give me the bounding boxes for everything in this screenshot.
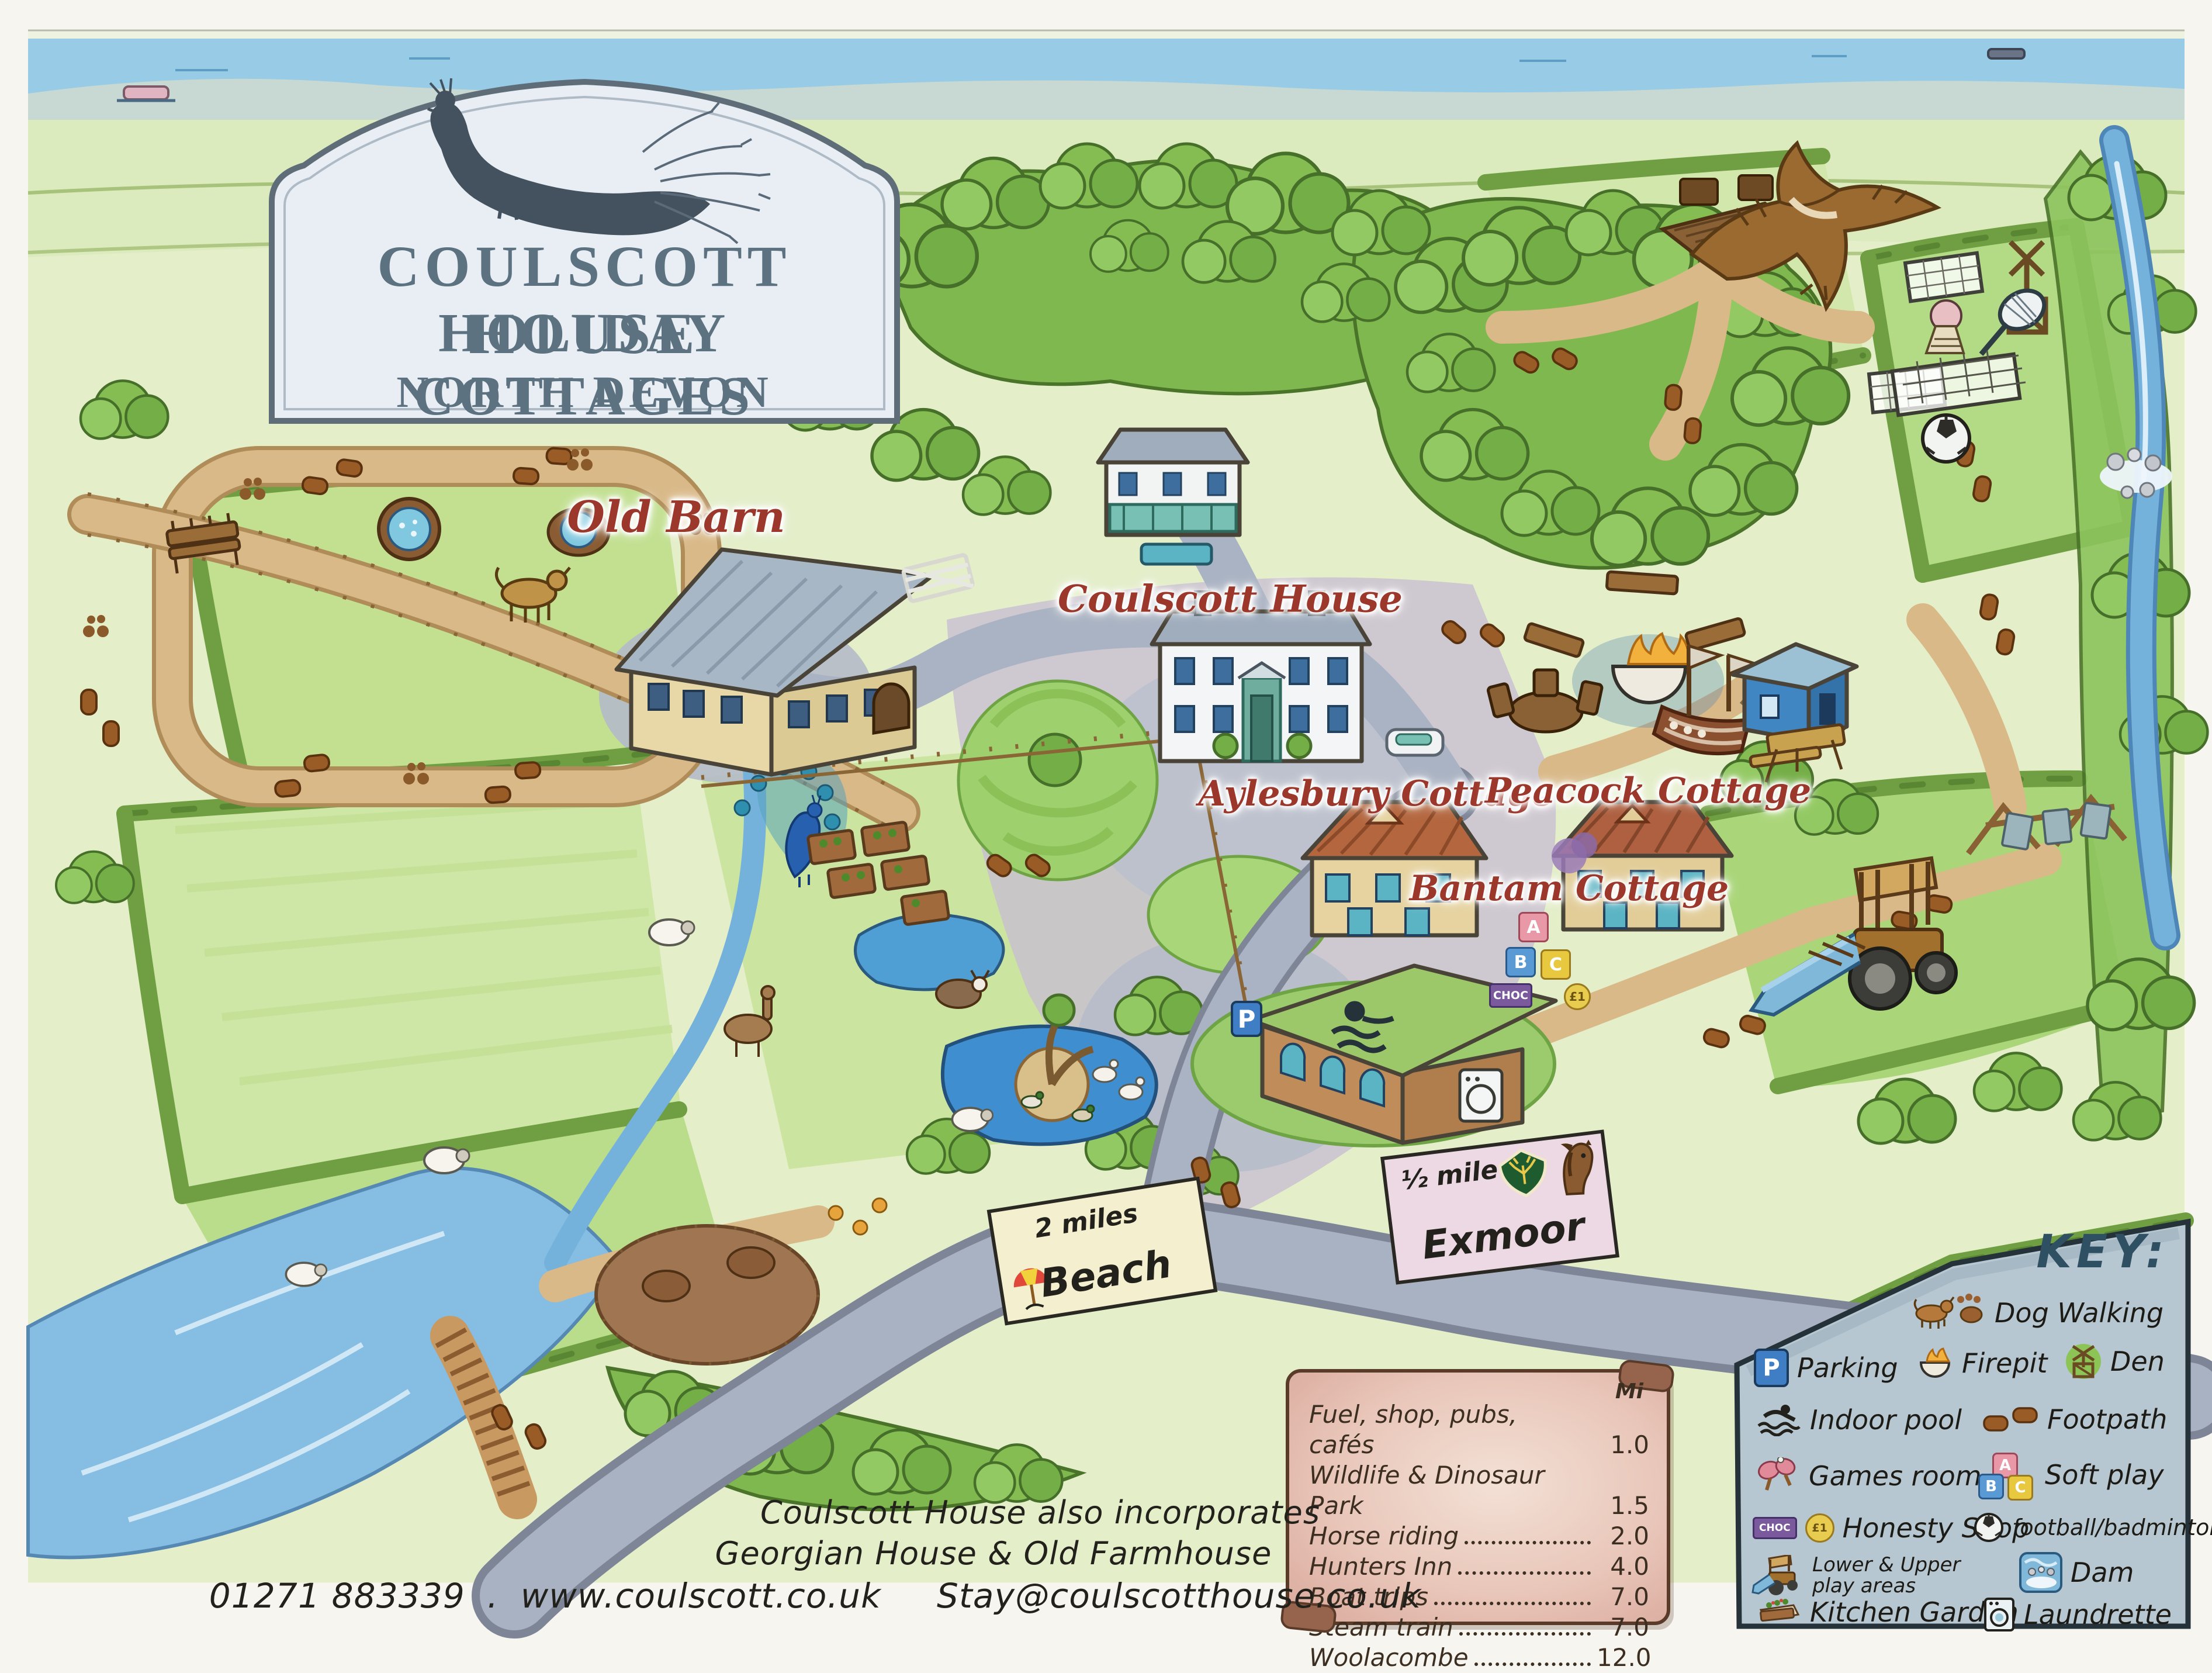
label-bantam-cottage: Bantam Cottage [1410,868,1729,909]
exmoor-pony-icon [1549,1138,1604,1200]
coin-icon: £1 [1805,1513,1834,1543]
footpath-icon [1983,1404,2039,1435]
footer-website: www.coulscott.co.uk [521,1576,881,1616]
key-item-football-badminton: football/badminton [1974,1512,2212,1543]
distance-miles: 2.0 [1597,1521,1649,1551]
distance-name: Wildlife & Dinosaur Park [1309,1460,1588,1521]
distance-miles: 1.5 [1600,1491,1649,1521]
distance-miles: 7.0 [1597,1582,1649,1612]
distances-unit-header: Mi [1615,1380,1643,1404]
key-item-firepit: Firepit [1916,1346,2047,1380]
boat-right-icon [1988,49,2024,58]
distance-miles: 1.0 [1597,1430,1649,1460]
footer-contact-line: 01271 883339 . www.coulscott.co.uk Stay@… [209,1576,1422,1616]
key-item-laundrette: Laundrette [1983,1596,2172,1633]
honesty-shop-choc-map: CHOC [1489,983,1532,1008]
key-label: Firepit [1962,1347,2047,1379]
key-item-indoor-pool: Indoor pool [1756,1404,1962,1436]
label-old-barn: Old Barn [567,492,785,542]
key-item-dog-walking: Dog Walking [1912,1294,2163,1332]
key-label: Dam [2071,1557,2134,1588]
distance-miles: 12.0 [1597,1643,1649,1673]
key-title: KEY: [2036,1226,2169,1278]
laundrette-icon [1983,1596,2016,1633]
honesty-shop-coin-map: £1 [1564,983,1591,1010]
key-label: Games room [1809,1460,1982,1492]
dam-icon [2019,1552,2062,1593]
indoor-pool-icon [1756,1404,1802,1436]
key-label: Lower & Upperplay areas [1812,1554,1961,1596]
key-label: Footpath [2047,1404,2167,1435]
coulscott-holiday-map: { "sign": { "title_line1": "COULSCOTT HO… [0,0,2212,1641]
label-coulscott-house: Coulscott House [1058,578,1403,621]
boat-left-icon [117,87,175,101]
key-item-parking: P Parking [1754,1349,1898,1387]
parking-sign-map: P [1231,1001,1262,1037]
distance-name: Steam train [1309,1612,1453,1643]
key-label: Parking [1797,1352,1898,1384]
play-areas-icon [1751,1555,1804,1596]
distance-row: Horse riding2.0 [1309,1521,1649,1551]
distance-row: Wildlife & Dinosaur Park1.5 [1309,1460,1649,1521]
exmoor-park-shield-icon [1496,1145,1552,1201]
distance-miles: 7.0 [1597,1612,1649,1643]
key-label: Dog Walking [1995,1297,2163,1329]
kitchen-garden-icon [1757,1597,1802,1627]
key-label: Den [2110,1346,2165,1377]
key-label: Soft play [2045,1459,2164,1491]
key-label: Indoor pool [1810,1404,1962,1436]
firepit-icon [1916,1346,1954,1380]
den-icon [2065,1343,2102,1380]
distance-name: Horse riding [1309,1521,1459,1551]
label-peacock-cottage: Peacock Cottage [1485,770,1811,811]
exmoor-distance: ½ mile [1399,1154,1500,1196]
distance-row: Fuel, shop, pubs, cafés1.0 [1309,1399,1649,1460]
key-item-footpath: Footpath [1983,1404,2167,1435]
distance-row: Woolacombe12.0 [1309,1643,1649,1673]
distance-miles: 4.0 [1597,1551,1649,1582]
map-key: KEY: Dog Walking P Parking Firepit Den [1744,1225,2183,1628]
football-icon-map [1923,415,1969,462]
key-item-den: Den [2065,1343,2165,1380]
distance-row: Steam train7.0 [1309,1612,1649,1643]
key-item-dam: Dam [2019,1552,2134,1593]
soft-play-block-a: A [1518,912,1549,942]
honesty-shop-icon: CHOC [1753,1517,1797,1539]
exmoor-name: Exmoor [1393,1200,1615,1271]
sign-title-line3: NORTH DEVON [269,367,900,418]
hot-tub-icon [379,499,439,559]
footer-separator: . [487,1576,499,1616]
beach-distance: 2 miles [1033,1198,1140,1244]
key-item-soft-play: A B C Soft play [1976,1453,2164,1497]
soft-play-icon: A B C [1976,1453,2037,1497]
footer-incorporates-line2: Georgian House & Old Farmhouse [715,1535,1272,1572]
distance-name: Fuel, shop, pubs, cafés [1309,1399,1586,1460]
key-label: football/badminton [2012,1515,2212,1540]
parking-icon: P [1754,1349,1789,1387]
soft-play-block-b: B [1505,947,1536,977]
key-item-kitchen-garden: Kitchen Garden [1757,1596,2019,1628]
soft-play-block-c: C [1541,949,1571,980]
football-badminton-icon [1974,1512,2004,1543]
key-label: Laundrette [2024,1599,2172,1630]
key-item-games-room: Games room [1755,1457,1982,1495]
dog-walking-icon [1912,1294,1986,1332]
footer-incorporates-line1: Coulscott House also incorporates [760,1494,1320,1531]
exmoor-sign: ½ mile Exmoor [1380,1129,1619,1284]
footer-phone: 01271 883339 [209,1576,465,1616]
distance-name: Woolacombe [1309,1643,1469,1673]
key-item-play-areas: Lower & Upperplay areas [1751,1554,1961,1596]
games-room-icon [1755,1457,1801,1495]
footer-email: Stay@coulscotthouse.co.uk [937,1576,1421,1616]
